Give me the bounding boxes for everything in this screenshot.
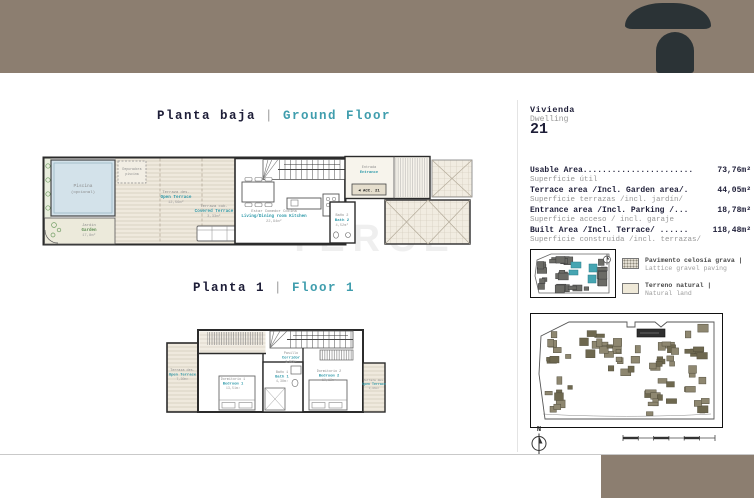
first-floor-title-es: Planta 1 — [193, 281, 265, 295]
stairs-first — [270, 331, 353, 348]
svg-text:Bedroom 1: Bedroom 1 — [223, 382, 244, 387]
bedroom1: Dormitorio 1 Bedroom 1 13,51m² — [219, 376, 255, 410]
bath2: Baño 2 Bath 2 4,52m² — [330, 202, 355, 243]
compass-n-label: N — [537, 426, 541, 434]
header-band — [0, 0, 754, 73]
svg-text:Pasillo: Pasillo — [284, 351, 298, 356]
svg-text:7,30m²: 7,30m² — [176, 378, 188, 382]
dwelling-label-es: Vivienda — [530, 106, 575, 115]
garden: Jardín Garden 17,8m² — [45, 218, 116, 244]
svg-text:piscina: piscina — [125, 172, 138, 176]
svg-text:3,06m²: 3,06m² — [369, 387, 380, 390]
site-plan-buildings — [545, 324, 709, 415]
brochure-page: TERCE Planta baja | Ground Floor — [0, 0, 754, 498]
title-separator: | — [265, 109, 274, 123]
area-row: Built Area /Incl. Terrace/ ......118,48m… — [530, 226, 751, 245]
sink — [291, 366, 301, 374]
svg-text:Bedroom 2: Bedroom 2 — [319, 374, 340, 379]
svg-text:Garden: Garden — [81, 228, 97, 233]
area-label: Built Area /Incl. Terrace/ ...... — [530, 226, 688, 236]
area-label: Usable Area....................... — [530, 166, 693, 176]
area-value: 44,05m² — [717, 186, 751, 196]
gravel-swatch-icon — [622, 258, 639, 269]
svg-text:22,94m²: 22,94m² — [266, 220, 282, 224]
svg-text:13,51m²: 13,51m² — [226, 387, 240, 391]
area-sublabel: Superficie construida /incl. terrazas/ — [530, 236, 751, 246]
svg-text:Open Terrace: Open Terrace — [362, 382, 386, 386]
svg-text:1,92m²: 1,92m² — [285, 360, 297, 364]
legend-item-natural: Terreno natural | Natural land — [622, 282, 743, 297]
ground-floor-title-en: Ground Floor — [283, 109, 391, 123]
legend-label-es: Terreno natural | — [645, 282, 711, 290]
key-plan-map — [531, 250, 615, 297]
louver-strip — [207, 332, 263, 345]
svg-text:3,33m²: 3,33m² — [207, 215, 221, 219]
svg-text:12,56m²: 12,56m² — [168, 201, 184, 205]
area-value: 18,78m² — [717, 206, 751, 216]
legend-label-en: Lattice gravel paving — [645, 265, 743, 273]
parking-lattice — [385, 200, 470, 244]
legend-item-gravel: Pavimento celosía grava | Lattice gravel… — [622, 257, 743, 272]
svg-text:Baño 1: Baño 1 — [276, 370, 288, 375]
pergola — [432, 160, 472, 197]
scale-bar — [621, 434, 717, 444]
svg-text:Bath 1: Bath 1 — [275, 375, 289, 380]
ground-floor-title: Planta baja | Ground Floor — [145, 109, 403, 123]
key-plan — [530, 249, 616, 298]
first-floor-plan: Terraza des. Open Terrace 7,30m² Pasillo — [163, 324, 391, 417]
svg-text:Entrada: Entrada — [362, 165, 376, 170]
svg-text:Bath 2: Bath 2 — [335, 218, 350, 223]
area-label: Entrance area /Incl. Parking /... — [530, 206, 688, 216]
stairs — [263, 160, 347, 180]
area-table: Usable Area.......................73,76m… — [530, 166, 751, 246]
legend-label-es: Pavimento celosía grava | — [645, 257, 743, 265]
legend-label-en: Natural land — [645, 290, 711, 298]
area-sublabel: Superficie terrazas /incl. jardín/ — [530, 196, 751, 206]
pool: Piscina (opcional) — [51, 160, 115, 216]
svg-text:Piscina: Piscina — [74, 183, 93, 189]
svg-text:Open Terrace: Open Terrace — [169, 373, 197, 378]
north-compass: N — [528, 424, 550, 456]
dwelling-number: 21 — [530, 125, 575, 134]
svg-text:Baño 2: Baño 2 — [336, 213, 349, 218]
svg-text:Entrance: Entrance — [360, 170, 379, 175]
svg-text:4,38m²: 4,38m² — [276, 380, 288, 384]
svg-text:Living/Dining room Kitchen: Living/Dining room Kitchen — [241, 214, 307, 219]
svg-text:Dormitorio 2: Dormitorio 2 — [317, 369, 341, 374]
footer-color-block — [601, 455, 754, 498]
terrace-right: Terraza des. Open Terrace 3,06m² — [362, 363, 386, 412]
title-separator-2: | — [274, 281, 283, 295]
brand-logo-icon-trunk — [656, 32, 694, 73]
brand-logo-icon — [625, 3, 711, 29]
access-tag: ◄ ACC. 21 — [358, 189, 380, 194]
svg-text:Covered Terrace: Covered Terrace — [195, 209, 234, 214]
svg-text:Dormitorio 1: Dormitorio 1 — [221, 377, 245, 382]
svg-text:Jardín: Jardín — [82, 223, 96, 228]
svg-text:(opcional): (opcional) — [71, 190, 95, 195]
area-sublabel: Superficie acceso / incl. garaje — [530, 216, 751, 226]
svg-text:4,52m²: 4,52m² — [336, 224, 349, 228]
ground-floor-plan: Piscina (opcional) Jardín Garden 17,8m² … — [42, 154, 475, 248]
area-label: Terrace area /Incl. Garden area/. — [530, 186, 688, 196]
svg-text:Terraza des.: Terraza des. — [170, 368, 194, 373]
site-plan-map — [531, 314, 722, 427]
svg-text:Estar Comedor Cocina: Estar Comedor Cocina — [251, 209, 297, 214]
svg-text:Depuradora: Depuradora — [122, 167, 141, 171]
first-floor-title: Planta 1 | Floor 1 — [145, 281, 403, 295]
svg-text:10,13m²: 10,13m² — [322, 379, 336, 383]
natural-swatch-icon — [622, 283, 639, 294]
wardrobe — [320, 350, 353, 360]
dwelling-block: Vivienda Dwelling 21 — [530, 106, 575, 134]
entrance-block: Entrada Entrance ◄ ACC. 21 — [345, 157, 430, 199]
pool-equipment: Depuradora piscina — [118, 161, 146, 183]
area-sublabel: Superficie útil — [530, 176, 751, 186]
area-value: 73,76m² — [717, 166, 751, 176]
dining-table — [242, 178, 274, 207]
terrace-left: Terraza des. Open Terrace 7,30m² — [167, 343, 198, 412]
svg-text:Open Terrace: Open Terrace — [161, 195, 192, 200]
ground-floor-title-es: Planta baja — [157, 109, 256, 123]
site-plan — [530, 313, 723, 428]
sidebar-divider — [517, 100, 518, 452]
area-row: Usable Area.......................73,76m… — [530, 166, 751, 185]
area-row: Terrace area /Incl. Garden area/.44,05m²… — [530, 186, 751, 205]
area-value: 118,48m² — [713, 226, 751, 236]
legend: Pavimento celosía grava | Lattice gravel… — [622, 257, 743, 307]
area-row: Entrance area /Incl. Parking /...18,78m²… — [530, 206, 751, 225]
svg-text:17,8m²: 17,8m² — [82, 234, 96, 238]
first-floor-title-en: Floor 1 — [292, 281, 355, 295]
